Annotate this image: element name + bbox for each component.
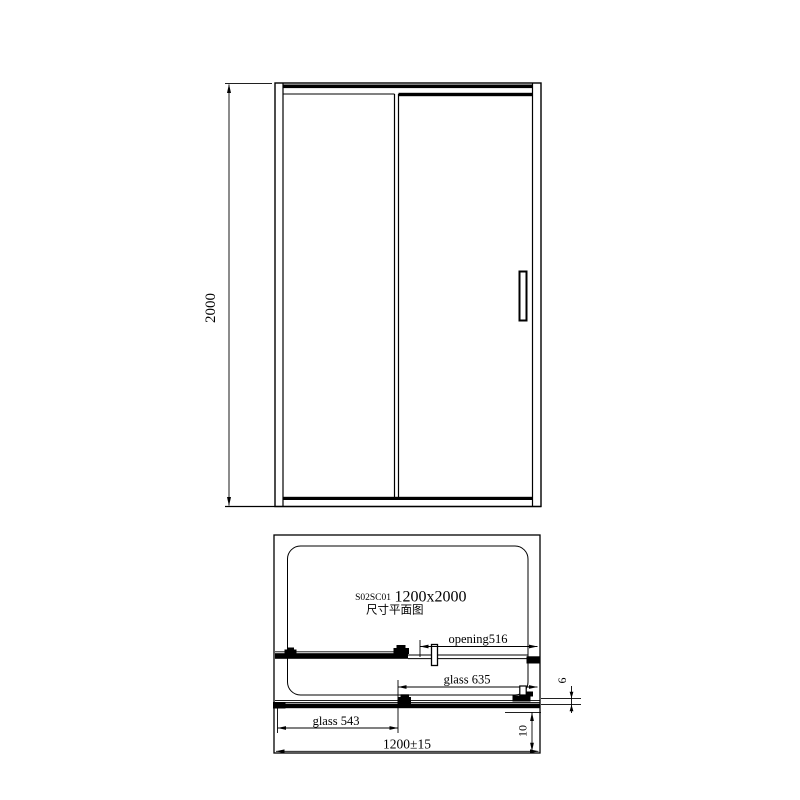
elevation-frame-outline [275,83,541,507]
opening-arrow-left [420,645,429,649]
upper-bar-center-clamp [394,648,410,654]
height-dim-label: 2000 [203,293,219,323]
roller-bracket [432,645,438,666]
upper-bar-left-clamp-top [287,648,294,651]
glass635-arrow-right [529,685,538,689]
dimension-height-2000: 2000 [203,84,272,506]
opening-dim-label: opening516 [448,632,507,646]
plan-rounded-tray-outline [288,546,529,695]
lower-bar-right-small-block [527,692,534,697]
lower-bar-center-clamp-top [401,694,410,697]
height-dim-arrow-up [227,84,231,93]
offset-dim-label: 10 [516,725,530,737]
plan-subtitle-label: 尺寸平面图 [366,603,424,617]
dimension-overall-width: 1200±15 [276,737,539,754]
model-code-label: S02SC01 [355,593,391,603]
upper-bar-center-clamp-top [397,645,406,649]
upper-bar-right-wall-block [527,656,541,663]
plan-upper-glass-bar [275,645,540,666]
thickness-arrow-down [570,692,574,699]
glass543-dim-label: glass 543 [313,714,360,728]
dimension-glass-thickness-6: 6 [541,678,581,714]
lower-bar-left-block [273,702,286,709]
technical-drawing-page: 2000 S02SC01 1200x2000 尺寸平面图 [0,0,800,800]
plan-title-block: S02SC01 1200x2000 尺寸平面图 [355,589,466,617]
glass543-arrow-left [278,726,287,730]
glass635-dim-label: glass 635 [444,673,491,687]
elevation-sliding-panel-top-band [399,93,533,96]
plan-view: S02SC01 1200x2000 尺寸平面图 opening516 [273,535,581,753]
glass543-arrow-right [390,726,399,730]
elevation-view: 2000 [203,83,541,507]
lower-bar-center-clamp [398,697,412,704]
glass635-arrow-left [398,685,407,689]
lower-bar-right-bracket-outline [520,686,526,695]
dimension-glass-543: glass 543 [278,709,399,734]
overall-width-dim-label: 1200±15 [383,737,431,752]
offset-arrow-up [530,712,534,721]
dimension-edge-offset-10: 10 [505,712,541,751]
thickness-arrow-up [570,705,574,712]
lower-glass-edge-band [275,704,541,709]
thickness-dim-label: 6 [555,678,569,684]
plan-lower-glass-bar [273,686,540,709]
elevation-top-track-band [283,85,533,89]
height-dim-arrow-down [227,497,231,506]
shower-door-drawing: 2000 S02SC01 1200x2000 尺寸平面图 [0,0,800,800]
door-handle [520,272,527,321]
opening-arrow-right [529,645,538,649]
upper-bar-left-clamp [285,650,297,655]
elevation-bottom-rail-band [283,497,533,500]
